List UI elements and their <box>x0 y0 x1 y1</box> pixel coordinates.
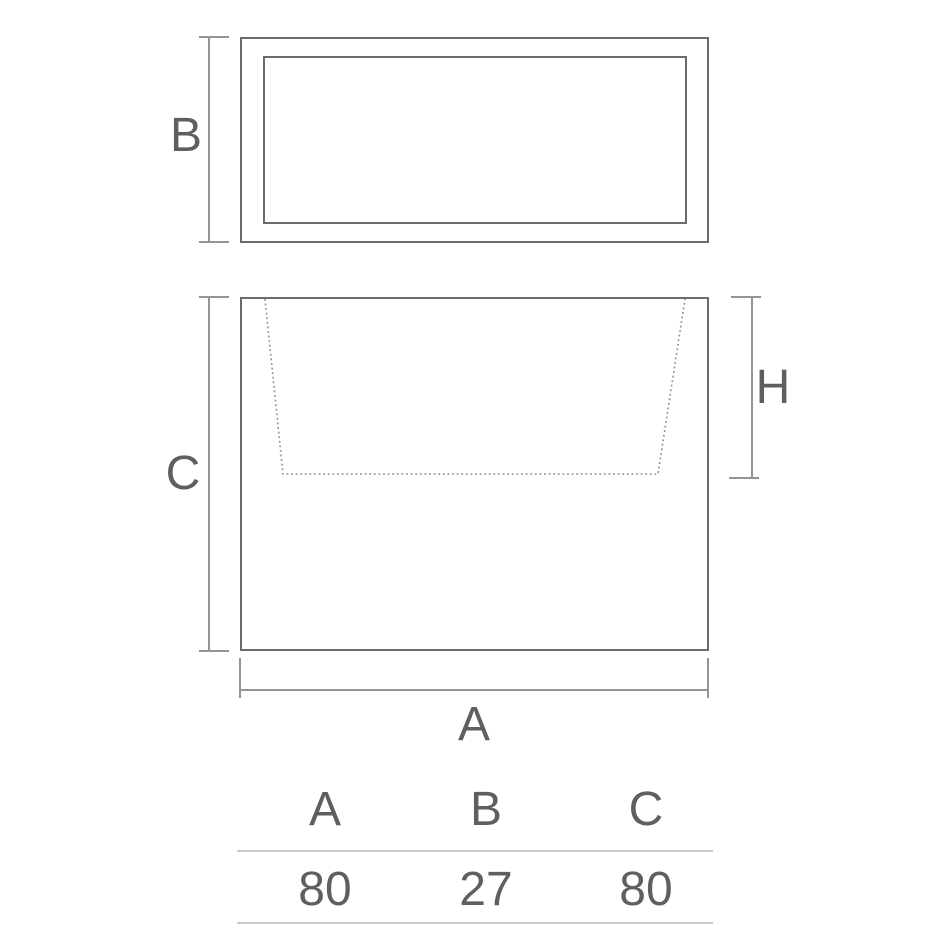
table-rule-bottom <box>237 922 713 924</box>
dimension-h-line <box>751 297 753 479</box>
table-value-c: 80 <box>619 866 672 914</box>
dimension-h-top-tick <box>731 296 761 298</box>
dimension-c-bottom-tick <box>199 650 229 652</box>
dimension-a-right-tick <box>707 658 709 698</box>
dimension-h-bottom-tick <box>729 477 759 479</box>
dimension-h-label: H <box>756 364 791 412</box>
dimension-c-line <box>208 297 210 651</box>
dimension-c-top-tick <box>199 296 229 298</box>
table-value-b: 27 <box>459 866 512 914</box>
table-header-b: B <box>470 786 502 834</box>
table-rule-top <box>237 850 713 852</box>
dimension-b-top-tick <box>199 36 229 38</box>
dimension-b-bottom-tick <box>199 241 229 243</box>
dimension-b-label: B <box>170 112 202 160</box>
table-value-a: 80 <box>298 866 351 914</box>
cavity-dashed-outline <box>240 297 709 651</box>
dimension-a-left-tick <box>239 658 241 698</box>
technical-drawing-canvas: B C H A A B C 80 27 80 <box>0 0 950 950</box>
table-header-a: A <box>309 786 341 834</box>
table-header-c: C <box>629 786 664 834</box>
dimension-a-label: A <box>458 701 490 749</box>
dimension-c-label: C <box>166 450 201 498</box>
dimension-a-line <box>240 689 709 691</box>
top-view-inner-rect <box>263 56 687 224</box>
dimension-b-line <box>208 37 210 243</box>
